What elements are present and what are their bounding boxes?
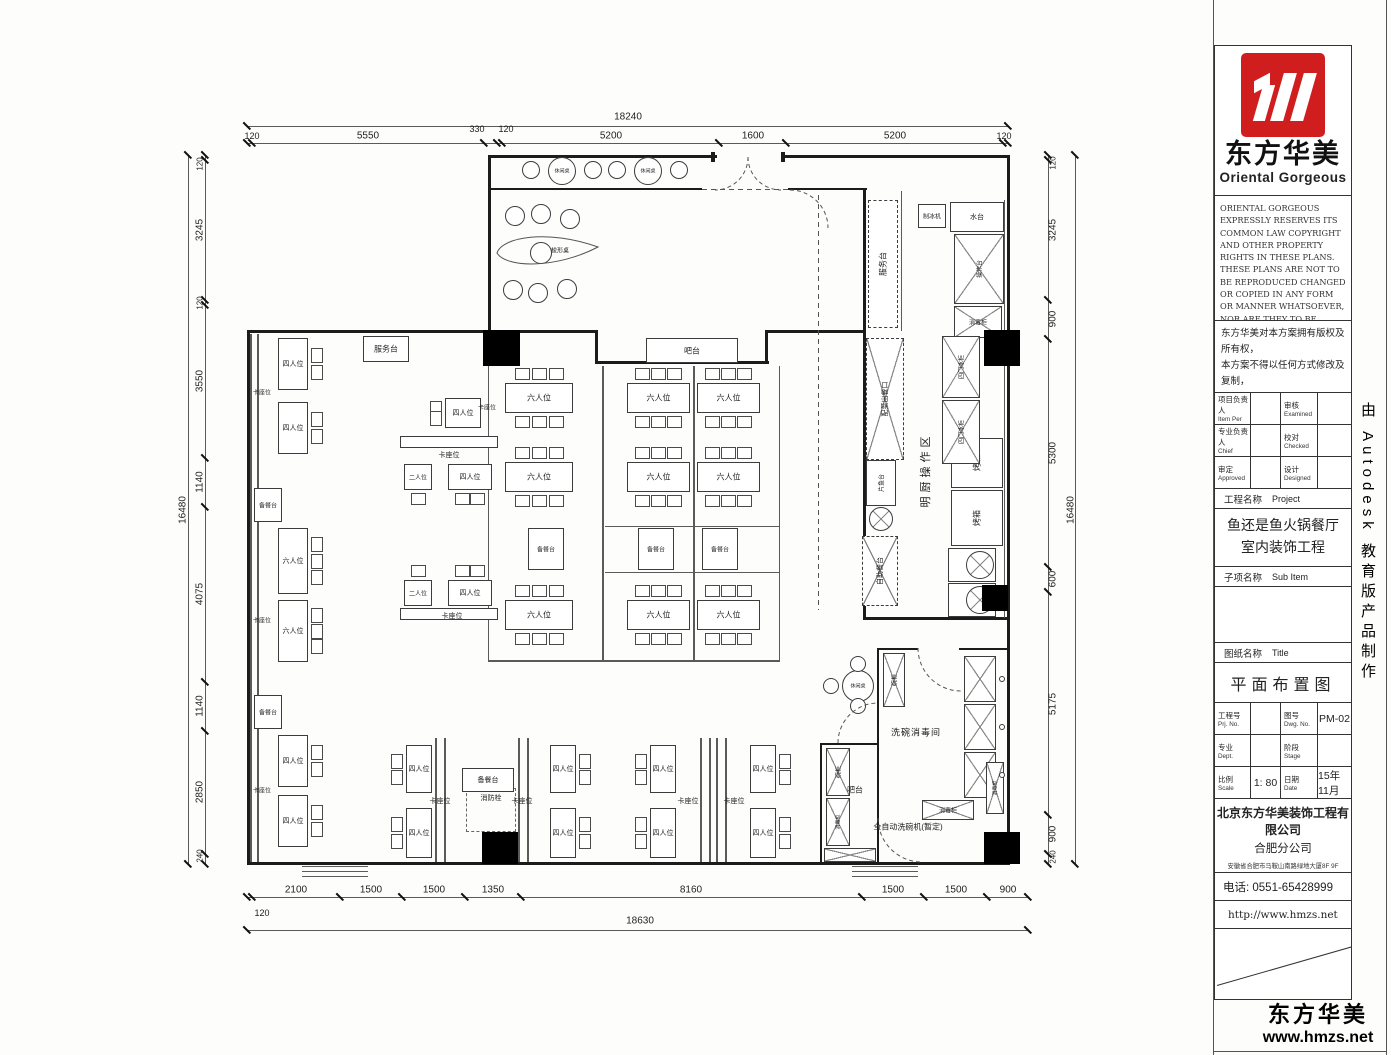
- furniture-label: 二人位: [409, 589, 427, 598]
- pc-cn: 工程号: [1218, 710, 1250, 721]
- table-四人位: 四人位: [750, 745, 776, 793]
- chair: [667, 447, 682, 459]
- footer-brand-block: 东方华美 www.hmzs.net: [1248, 997, 1388, 1047]
- equipment-配菜出餐口: 配菜出餐口: [866, 338, 904, 460]
- titleblock-value-cell: [1318, 735, 1351, 767]
- pc-cn: 专业负责人: [1218, 426, 1250, 448]
- table-备餐台: 备餐台: [638, 528, 674, 570]
- titleblock-label-cell: 项目负责人Item Per: [1215, 393, 1251, 425]
- table-水台: 水台: [950, 202, 1004, 232]
- titleblock-tail: [1215, 929, 1351, 999]
- dimension-text: 3245: [195, 219, 206, 241]
- table-四人位: 四人位: [448, 464, 492, 490]
- chair: [737, 633, 752, 645]
- furniture-label: 六人位: [717, 393, 741, 404]
- equipment-消毒柜: 消毒柜: [986, 762, 1004, 814]
- chair: [532, 447, 547, 459]
- chair: [721, 585, 736, 597]
- furniture-label: 吧台: [684, 345, 700, 356]
- table-服务台: 服务台: [868, 200, 898, 328]
- seat-circle: [560, 209, 580, 229]
- dimension-text: 3245: [1048, 219, 1059, 241]
- plan-label: 卡座位: [678, 796, 699, 806]
- dimension-text: 330: [469, 124, 484, 134]
- pc-cn: 阶段: [1284, 742, 1317, 753]
- pc-en: Dwg. No.: [1284, 721, 1317, 728]
- dimension-text: 1500: [423, 885, 445, 896]
- copyright-english: ORIENTAL GORGEOUS EXPRESSLY RESERVES ITS…: [1215, 196, 1351, 321]
- subitem-label-cn: 子项名称: [1224, 570, 1262, 584]
- chair: [311, 745, 323, 760]
- chair: [667, 633, 682, 645]
- chair: [635, 585, 650, 597]
- wall: [781, 155, 1010, 158]
- table-四人位: 四人位: [448, 580, 492, 606]
- equipment: [964, 656, 996, 702]
- subitem-label-en: Sub Item: [1272, 572, 1308, 582]
- seat-circle: [999, 724, 1005, 730]
- wall: [788, 188, 867, 190]
- furniture-label: 备餐台: [259, 708, 277, 717]
- company-branch: 合肥分公司: [1215, 840, 1351, 856]
- wall: [865, 617, 1008, 620]
- dimension-text: 1140: [195, 471, 206, 493]
- dimension-text: 5200: [884, 131, 906, 142]
- copyright-cn-line: 东方华美对本方案拥有版权及所有权，: [1221, 326, 1345, 358]
- table-备餐台: 备餐台: [254, 488, 282, 522]
- chair: [635, 770, 647, 785]
- chair: [721, 495, 736, 507]
- dimension-text: 120: [254, 908, 269, 918]
- plan-line: [247, 143, 1008, 144]
- chair: [651, 447, 666, 459]
- copyright-chinese: 东方华美对本方案拥有版权及所有权，本方案不得以任何方式修改及复制，未经东方华美书…: [1215, 321, 1351, 393]
- chair: [721, 633, 736, 645]
- wall: [488, 155, 491, 333]
- pc-cn: 设计: [1284, 464, 1317, 475]
- chair: [411, 565, 426, 577]
- titleblock-label-cell: 校对Checked: [1281, 425, 1318, 457]
- furniture-label: 服务台: [878, 252, 889, 276]
- table-吧台: 吧台: [646, 338, 738, 363]
- table-六人位: 六人位: [505, 462, 573, 492]
- dimension-text: 1350: [482, 885, 504, 896]
- seat-circle: [528, 283, 548, 303]
- table-四人位: 四人位: [278, 795, 308, 847]
- structural-column: [982, 585, 1008, 611]
- chair: [705, 447, 720, 459]
- dimension-text: 3550: [195, 370, 206, 392]
- plan-label: 明厨操作区: [917, 433, 933, 508]
- furniture-label: 四人位: [283, 816, 304, 826]
- seat-circle: [530, 242, 552, 264]
- furniture-label: 四人位: [753, 828, 774, 838]
- furniture-label: 四人位: [653, 764, 674, 774]
- table-四人位: 四人位: [750, 808, 776, 858]
- titleblock-label-cell: 比例Scale: [1215, 767, 1251, 799]
- pc-cn: 项目负责人: [1218, 394, 1250, 416]
- furniture-label: 消毒柜: [939, 806, 957, 815]
- chair: [311, 537, 323, 552]
- plan-line: [852, 866, 918, 867]
- title-block: 东方华美 Oriental Gorgeous ORIENTAL GORGEOUS…: [1214, 45, 1352, 1000]
- wall: [595, 330, 598, 363]
- furniture-label: 烤箱: [972, 510, 983, 526]
- dimension-text: 240: [196, 849, 205, 862]
- table-六人位: 六人位: [627, 383, 690, 413]
- plan-label: 卡座位: [253, 616, 271, 625]
- chair: [635, 447, 650, 459]
- pc-en: Chief: [1218, 448, 1250, 455]
- plan-line: [257, 334, 259, 862]
- furniture-label: 六人位: [283, 626, 304, 636]
- furniture-label: 休闲桌: [640, 168, 655, 175]
- chair: [455, 565, 470, 577]
- company-phone: 电话: 0551-65428999: [1215, 873, 1351, 901]
- furniture-label: 消毒柜: [835, 814, 842, 829]
- table-六人位: 六人位: [627, 600, 690, 630]
- table-二人位: 二人位: [404, 580, 432, 606]
- chair: [705, 585, 720, 597]
- seat-circle: [869, 507, 893, 531]
- seat-circle: [608, 161, 626, 179]
- chair: [515, 495, 530, 507]
- chair: [311, 570, 323, 585]
- chair: [532, 368, 547, 380]
- dimension-text: 5175: [1048, 693, 1059, 715]
- dimension-text: 2850: [195, 781, 206, 803]
- dimension-text: 8160: [680, 885, 702, 896]
- furniture-label: 备餐台: [647, 545, 665, 554]
- furniture-label: 六人位: [283, 556, 304, 566]
- furniture-label: 消毒柜: [992, 780, 999, 795]
- plan-label: 卡座位: [439, 450, 460, 460]
- seat-circle: [522, 161, 540, 179]
- copyright-cn-line: 本方案不得以任何方式修改及复制，: [1221, 358, 1345, 390]
- dimension-text: 600: [1048, 571, 1059, 588]
- titleblock-value-cell: 15年11月: [1318, 767, 1351, 799]
- table-六人位: 六人位: [505, 383, 573, 413]
- company-name: 北京东方华美装饰工程有限公司: [1215, 804, 1351, 838]
- equipment: [964, 704, 996, 750]
- seat-circle: [531, 204, 551, 224]
- plan-label: 卡座位: [253, 388, 271, 397]
- structural-column: [984, 330, 1020, 366]
- furniture-label: 水台: [970, 212, 984, 222]
- project-label-en: Project: [1272, 494, 1300, 504]
- structural-column: [984, 832, 1020, 864]
- titleblock-value-cell: [1318, 393, 1351, 425]
- furniture-label: 四人位: [753, 764, 774, 774]
- plan-label: 卡座位: [430, 796, 451, 806]
- project-label-cn: 工程名称: [1224, 492, 1262, 506]
- chair: [515, 416, 530, 428]
- chair: [579, 817, 591, 832]
- plan-label: 卡座位: [442, 611, 463, 621]
- project-label-row: 工程名称 Project: [1215, 489, 1351, 509]
- pc-cn: 审核: [1284, 400, 1317, 411]
- chair: [515, 585, 530, 597]
- chair: [779, 834, 791, 849]
- chair: [311, 348, 323, 363]
- plan-label: 洗碗消毒间: [891, 726, 941, 739]
- plan-line: [693, 366, 695, 662]
- plan-line: [852, 876, 918, 877]
- chair: [579, 770, 591, 785]
- furniture-label: 备餐台: [711, 545, 729, 554]
- round-table: 休闲桌: [634, 157, 662, 185]
- wall: [820, 743, 822, 864]
- plan-line: [302, 876, 368, 877]
- sheet-border: [1213, 1051, 1386, 1052]
- titleblock-value-cell: [1251, 393, 1281, 425]
- furniture-label: 四人位: [283, 423, 304, 433]
- project-name: 鱼还是鱼火锅餐厅室内装饰工程: [1215, 509, 1351, 567]
- structural-column: [483, 330, 520, 366]
- titleblock-value-cell: [1251, 703, 1281, 735]
- chair: [651, 416, 666, 428]
- chair: [430, 411, 442, 426]
- dimension-text: 5300: [1048, 442, 1059, 464]
- equipment-自助餐台: 自助餐台: [862, 536, 898, 606]
- wall: [765, 330, 768, 363]
- seat-circle: [850, 698, 866, 714]
- table-六人位: 六人位: [697, 462, 760, 492]
- chair: [667, 495, 682, 507]
- furniture-label: 配菜出餐口: [880, 382, 890, 417]
- project-name-line: 鱼还是鱼火锅餐厅: [1215, 516, 1351, 538]
- chair: [635, 754, 647, 769]
- dimension-text: 5200: [600, 131, 622, 142]
- floor-plan: 服务台吧台四人位四人位备餐台六人位六人位备餐台四人位四人位六人位六人位六人位备餐…: [0, 0, 1391, 1055]
- furniture-label: 片鱼台: [877, 474, 886, 492]
- wall: [877, 648, 918, 650]
- furniture-label: 四人位: [283, 359, 304, 369]
- dimension-text: 120: [196, 296, 205, 309]
- wall: [490, 155, 717, 158]
- company-section: 北京东方华美装饰工程有限公司 合肥分公司 安徽省合肥市马鞍山南路绿地大厦8F 9…: [1215, 799, 1351, 873]
- seat-circle: [966, 551, 994, 579]
- wall: [781, 152, 785, 162]
- chair: [737, 447, 752, 459]
- project-name-line: 室内装饰工程: [1215, 538, 1351, 560]
- table-四人位: 四人位: [550, 745, 576, 793]
- furniture-label: 休闲桌: [554, 168, 569, 175]
- chair: [779, 754, 791, 769]
- pc-cn: 比例: [1218, 774, 1250, 785]
- plan-label: 卡座位: [253, 786, 271, 795]
- equipment-碗柜: 碗柜: [883, 653, 905, 707]
- chair: [391, 770, 403, 785]
- furniture-label: 二人位: [409, 473, 427, 482]
- chair: [779, 817, 791, 832]
- pc-en: Date: [1284, 785, 1317, 792]
- furniture-label: 碗柜: [890, 674, 899, 686]
- chair: [579, 834, 591, 849]
- chair: [651, 495, 666, 507]
- logo-section: 东方华美 Oriental Gorgeous: [1215, 46, 1351, 196]
- plan-line: [302, 871, 368, 872]
- pc-en: Designed: [1284, 475, 1317, 482]
- plan-line: [602, 366, 604, 662]
- sheet-label-cn: 图纸名称: [1224, 646, 1262, 660]
- chair: [515, 368, 530, 380]
- chair: [391, 754, 403, 769]
- plan-line: [247, 126, 1008, 127]
- furniture-label: 六人位: [647, 393, 671, 404]
- chair: [311, 608, 323, 623]
- titleblock-label-cell: 审核Examined: [1281, 393, 1318, 425]
- plan-line: [605, 526, 780, 527]
- furniture-label: 四人位: [460, 588, 481, 598]
- table-六人位: 六人位: [697, 383, 760, 413]
- plan-line: [247, 930, 1028, 931]
- furniture-label: 四门冰柜: [957, 355, 966, 379]
- chair: [311, 554, 323, 569]
- furniture-label: 消毒柜: [969, 318, 987, 327]
- plan-line: [302, 866, 368, 867]
- dimension-text: 900: [1000, 885, 1017, 896]
- furniture-label: 备餐台: [537, 545, 555, 554]
- company-url: http://www.hmzs.net: [1215, 901, 1351, 929]
- seat-circle: [503, 280, 523, 300]
- pc-cn: 日期: [1284, 774, 1317, 785]
- chair: [391, 834, 403, 849]
- furniture-label: 四人位: [553, 764, 574, 774]
- furniture-label: 制冰机: [923, 212, 941, 221]
- table-片鱼台: 片鱼台: [866, 460, 896, 506]
- company-address: 安徽省合肥市马鞍山南路绿地大厦8F 9F: [1215, 861, 1351, 870]
- plan-line: [716, 738, 718, 862]
- dimension-text: 16480: [178, 496, 189, 524]
- equipment-操作台: 操作台: [954, 234, 1004, 304]
- chair: [391, 817, 403, 832]
- furniture-label: 四人位: [283, 756, 304, 766]
- table-六人位: 六人位: [697, 600, 760, 630]
- pc-cn: 专业: [1218, 742, 1250, 753]
- titleblock-label-cell: 设计Designed: [1281, 457, 1318, 489]
- chair: [635, 817, 647, 832]
- chair: [635, 633, 650, 645]
- dimension-text: 1500: [882, 885, 904, 896]
- chair: [311, 429, 323, 444]
- dimension-text: 2100: [285, 885, 307, 896]
- plan-label: 卡座位: [724, 796, 745, 806]
- chair: [549, 633, 564, 645]
- plan-label: 消防栓: [481, 793, 502, 803]
- seat-circle: [505, 206, 525, 226]
- table-二人位: 二人位: [404, 464, 432, 490]
- autodesk-education-note: 由 Autodesk 教育版产品制作: [1357, 402, 1378, 982]
- chair: [667, 416, 682, 428]
- dimension-text: 5550: [357, 131, 379, 142]
- furniture-label: 六人位: [527, 393, 551, 404]
- furniture-label: 六人位: [717, 472, 741, 483]
- table-备餐台: 备餐台: [462, 768, 514, 792]
- table-六人位: 六人位: [505, 600, 573, 630]
- plan-line: [605, 572, 780, 573]
- titleblock-value-cell: 1: 80: [1251, 767, 1281, 799]
- chair: [532, 416, 547, 428]
- plan-label: 卡座位: [512, 796, 533, 806]
- dimension-text: 120: [1049, 156, 1058, 169]
- wall: [711, 152, 715, 162]
- chair: [311, 624, 323, 639]
- table-四人位: 四人位: [550, 808, 576, 858]
- titleblock-value-cell: [1318, 457, 1351, 489]
- furniture-label: 自助餐台: [875, 557, 885, 585]
- table-六人位: 六人位: [278, 600, 308, 662]
- titleblock-value-cell: PM-02: [1318, 703, 1351, 735]
- furniture-label: 四人位: [653, 828, 674, 838]
- titleblock-label-cell: 阶段Stage: [1281, 735, 1318, 767]
- chair: [737, 368, 752, 380]
- chair: [779, 770, 791, 785]
- seat-circle: [670, 161, 688, 179]
- chair: [311, 805, 323, 820]
- door-swing-arc: [715, 157, 748, 190]
- titleblock-label-cell: 图号Dwg. No.: [1281, 703, 1318, 735]
- pc-en: Stage: [1284, 753, 1317, 760]
- dimension-text: 120: [196, 157, 205, 170]
- sheet-label-en: Title: [1272, 648, 1289, 658]
- table-四人位: 四人位: [445, 398, 481, 428]
- wall: [767, 330, 865, 333]
- seat-circle: [850, 656, 866, 672]
- dimension-text: 18630: [626, 916, 654, 927]
- sheet-border: [1386, 0, 1387, 1055]
- chair: [705, 416, 720, 428]
- furniture-label: 操作台: [975, 260, 984, 278]
- table-烤箱: 烤箱: [951, 490, 1003, 546]
- chair: [635, 368, 650, 380]
- titleblock-label-cell: 审定Approved: [1215, 457, 1251, 489]
- table-制冰机: 制冰机: [918, 204, 946, 228]
- round-table: 休闲桌: [548, 157, 576, 185]
- wall: [959, 648, 1008, 650]
- door-swing-arc: [918, 648, 961, 691]
- chair: [635, 416, 650, 428]
- titleblock-value-cell: [1251, 735, 1281, 767]
- table-服务台: 服务台: [363, 336, 409, 362]
- plan-line: [700, 738, 702, 862]
- furniture-label: 六人位: [527, 472, 551, 483]
- table-备餐台: 备餐台: [702, 528, 738, 570]
- chair: [635, 495, 650, 507]
- meta-table: 工程号Prj. No.图号Dwg. No.PM-02专业Dept.阶段Stage…: [1215, 703, 1351, 799]
- furniture-label: 四人位: [409, 828, 430, 838]
- chair: [579, 754, 591, 769]
- chair: [311, 365, 323, 380]
- dimension-text: 120: [244, 131, 259, 141]
- table-四人位: 四人位: [278, 338, 308, 390]
- chair: [532, 585, 547, 597]
- equipment-四门冰柜: 四门冰柜: [942, 400, 980, 464]
- furniture-label: 六人位: [647, 610, 671, 621]
- pc-en: Item Per: [1218, 416, 1250, 423]
- footer-url: www.hmzs.net: [1248, 1029, 1388, 1047]
- furniture-label: 碗柜: [834, 766, 843, 778]
- chair: [737, 495, 752, 507]
- table-四人位: 四人位: [650, 808, 676, 858]
- titleblock-value-cell: [1318, 425, 1351, 457]
- titleblock-label-cell: 日期Date: [1281, 767, 1318, 799]
- table-四人位: 四人位: [278, 735, 308, 787]
- dimension-text: 1600: [742, 131, 764, 142]
- chair: [737, 416, 752, 428]
- chair: [515, 447, 530, 459]
- chair: [470, 565, 485, 577]
